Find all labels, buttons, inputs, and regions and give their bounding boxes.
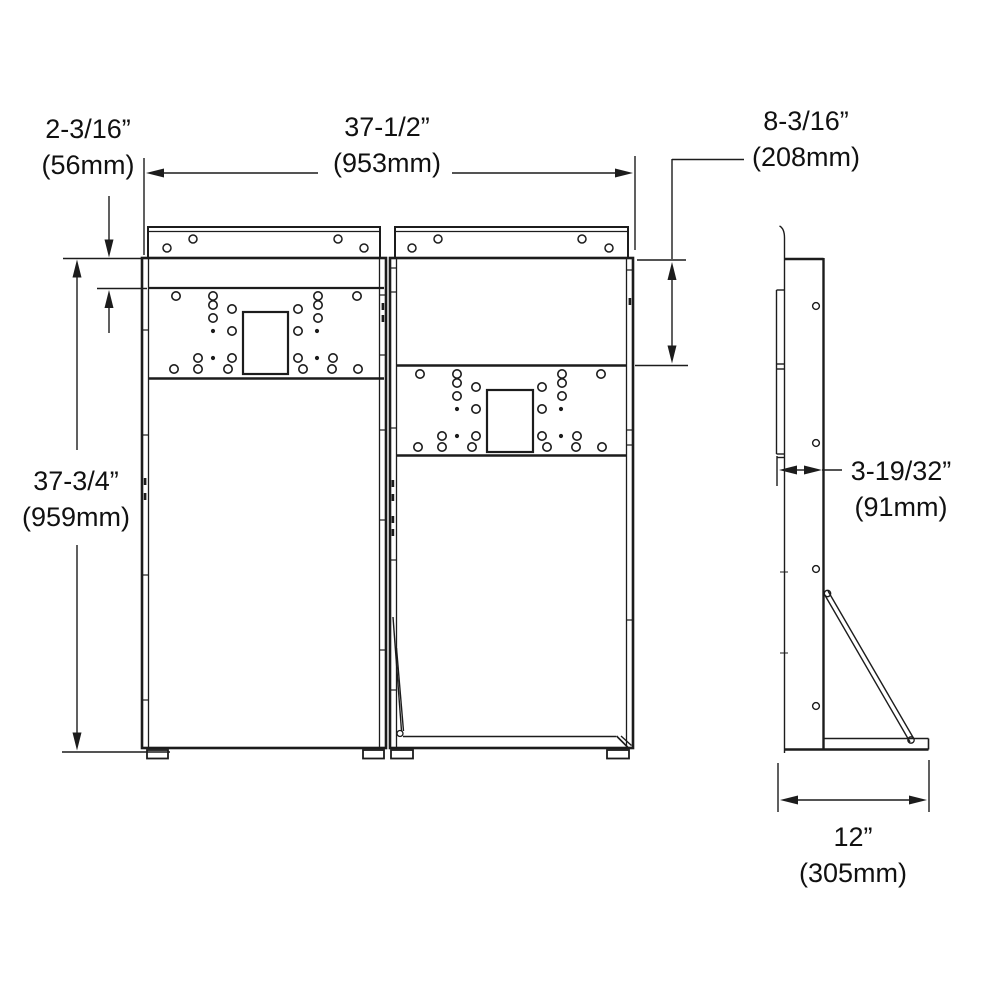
technical-drawing: 2-3/16” (56mm) 37-1/2” (953mm) 8-3/16” (… <box>0 0 1000 1000</box>
dim-mount-offset-metric: (56mm) <box>42 147 135 183</box>
dimension-linework <box>62 156 929 812</box>
dim-base-depth-metric: (305mm) <box>799 855 907 891</box>
right-unit-top-rail <box>395 227 628 258</box>
dim-overall-height-metric: (959mm) <box>22 499 130 535</box>
side-column <box>785 258 824 750</box>
dim-frame-depth-inches: 3-19/32” <box>851 453 952 489</box>
dim-overall-height-label: 37-3/4” (959mm) <box>22 463 130 535</box>
right-unit-channel-ticks <box>390 268 633 690</box>
left-unit-top-rail <box>148 227 380 258</box>
front-view-right-unit <box>390 227 633 759</box>
front-view-left-unit <box>142 227 386 759</box>
left-plate-cutout <box>243 312 288 374</box>
dim-upper-section-lines <box>635 159 744 366</box>
right-plate-cutout <box>487 390 533 452</box>
dim-mount-offset-lines <box>63 196 147 333</box>
left-unit-channel-ticks <box>142 295 386 700</box>
dim-base-depth-inches: 12” <box>799 819 907 855</box>
left-unit-foot-left <box>147 750 168 759</box>
side-hanger-strip <box>777 290 785 458</box>
left-unit-frame <box>142 258 386 748</box>
dim-overall-width-label: 37-1/2” (953mm) <box>333 109 441 181</box>
dim-frame-depth-metric: (91mm) <box>851 489 952 525</box>
dim-upper-section-label: 8-3/16” (208mm) <box>752 103 860 175</box>
dim-upper-section-inches: 8-3/16” <box>752 103 860 139</box>
dim-overall-height-inches: 37-3/4” <box>22 463 130 499</box>
right-unit-bottom-shelf <box>393 617 632 749</box>
dim-overall-width-inches: 37-1/2” <box>333 109 441 145</box>
left-unit-foot-right <box>363 750 384 759</box>
side-wall-line <box>780 226 785 753</box>
dim-overall-width-metric: (953mm) <box>333 145 441 181</box>
side-foot-plate <box>785 739 929 750</box>
dim-frame-depth-label: 3-19/32” (91mm) <box>851 453 952 525</box>
dim-base-depth-label: 12” (305mm) <box>799 819 907 891</box>
dim-mount-offset-inches: 2-3/16” <box>42 111 135 147</box>
dim-frame-depth-lines <box>777 456 842 486</box>
right-unit-foot-left <box>391 750 413 759</box>
side-diagonal-brace <box>824 590 914 743</box>
dim-base-depth-lines <box>778 760 929 812</box>
dim-mount-offset-label: 2-3/16” (56mm) <box>42 111 135 183</box>
dim-upper-section-metric: (208mm) <box>752 139 860 175</box>
right-unit-foot-right <box>607 750 629 759</box>
right-unit-mounting-plate <box>396 366 627 456</box>
left-unit-mounting-plate <box>148 288 384 379</box>
right-unit-frame <box>390 258 633 748</box>
